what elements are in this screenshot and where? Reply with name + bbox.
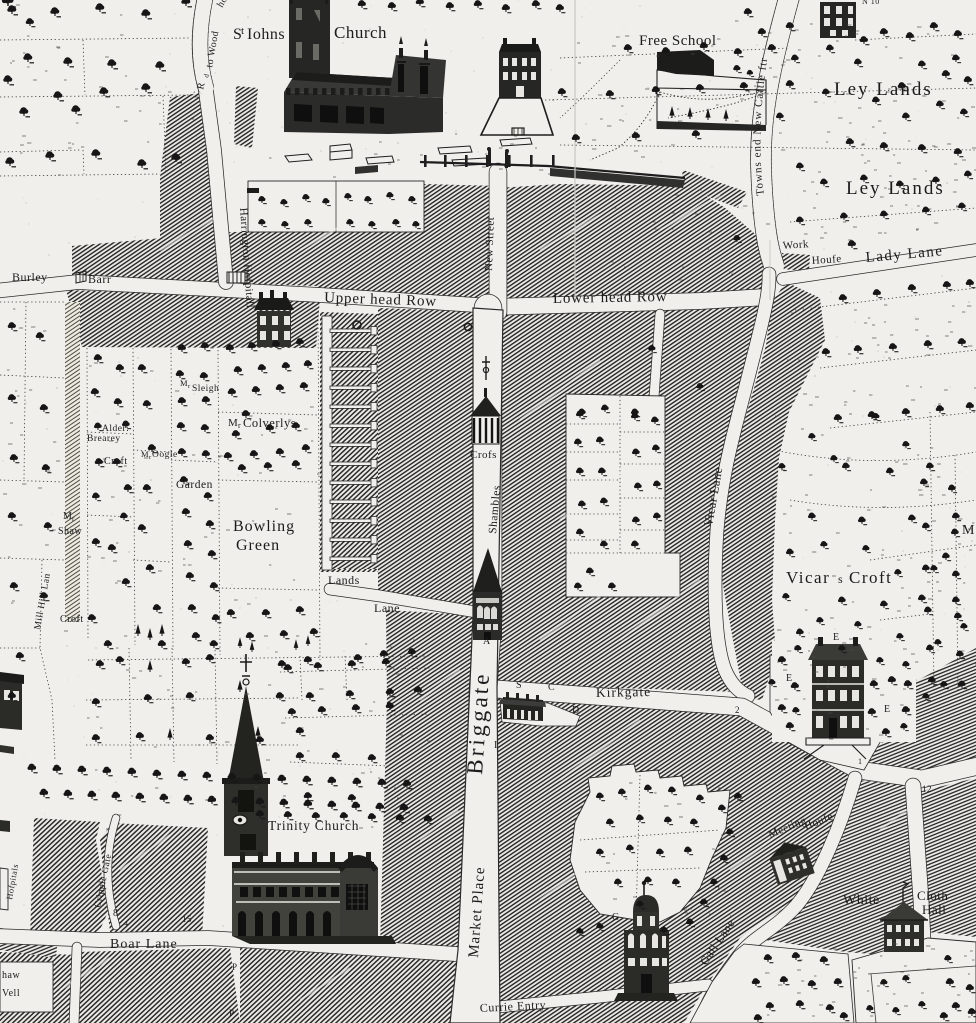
svg-text:r: r: [238, 421, 241, 430]
svg-text:Ley Lands: Ley Lands: [846, 178, 945, 199]
svg-text:Church: Church: [334, 23, 387, 42]
svg-text:12: 12: [922, 784, 932, 794]
svg-text:New Street: New Street: [483, 217, 497, 272]
svg-text:Lower head Row: Lower head Row: [553, 289, 668, 307]
svg-text:E: E: [884, 704, 891, 715]
svg-text:r: r: [188, 383, 191, 390]
svg-text:8: 8: [113, 908, 119, 919]
svg-text:M: M: [180, 378, 188, 388]
svg-text:Hall: Hall: [922, 902, 946, 917]
svg-text:Houfe: Houfe: [811, 253, 842, 267]
svg-text:Bowling: Bowling: [233, 518, 295, 535]
svg-text:Ley Lands: Ley Lands: [834, 79, 933, 100]
svg-text:Green: Green: [236, 537, 280, 554]
svg-text:Croft: Croft: [104, 456, 128, 467]
svg-text:Cloth: Cloth: [917, 888, 948, 903]
svg-text:15: 15: [182, 914, 192, 924]
svg-text:M: M: [228, 417, 238, 429]
svg-text:Trinity Church: Trinity Church: [268, 818, 359, 833]
svg-text:Crofs: Crofs: [470, 449, 497, 461]
svg-text:haw: haw: [2, 970, 20, 981]
svg-text:Work: Work: [782, 238, 809, 252]
svg-text:M: M: [63, 511, 72, 522]
svg-text:Croft: Croft: [60, 614, 84, 625]
svg-text:r: r: [72, 515, 75, 523]
svg-text:M: M: [962, 523, 975, 538]
svg-text:Kirkgate: Kirkgate: [596, 684, 651, 700]
svg-text:1: 1: [858, 757, 863, 766]
svg-text:Alder:: Alder:: [102, 424, 129, 434]
svg-text:Burley: Burley: [12, 270, 48, 284]
svg-text:Lane: Lane: [374, 601, 400, 615]
svg-text:E: E: [833, 632, 840, 643]
svg-text:Colverlys: Colverlys: [243, 416, 296, 430]
svg-text:I: I: [494, 740, 498, 751]
svg-text:Vicar: Vicar: [786, 568, 830, 587]
svg-text:4: 4: [124, 919, 129, 928]
svg-text:P: P: [232, 962, 238, 972]
svg-text:Free School: Free School: [639, 33, 717, 49]
svg-text:A: A: [483, 636, 491, 647]
svg-text:Barr: Barr: [88, 272, 111, 286]
svg-text:Shaw: Shaw: [58, 526, 83, 537]
svg-text:E: E: [786, 673, 793, 684]
svg-text:S: S: [516, 680, 522, 691]
svg-text:Brearey: Brearey: [87, 434, 121, 444]
svg-text:t: t: [241, 25, 245, 37]
svg-text:2: 2: [735, 705, 740, 715]
svg-text:P: P: [229, 1008, 235, 1018]
svg-text:s: s: [838, 572, 843, 586]
svg-text:G: G: [612, 912, 620, 923]
svg-text:C: C: [548, 682, 555, 693]
svg-text:Oogle: Oogle: [152, 450, 178, 460]
svg-text:Boar Lane: Boar Lane: [110, 937, 178, 952]
svg-text:Lands: Lands: [328, 573, 360, 587]
svg-text:Iohns: Iohns: [247, 26, 285, 43]
svg-text:N 10: N 10: [862, 0, 880, 6]
svg-text:Croft: Croft: [849, 568, 892, 587]
svg-text:M: M: [141, 449, 149, 459]
svg-text:Sleigh: Sleigh: [192, 384, 219, 394]
svg-text:Vell: Vell: [2, 988, 20, 999]
svg-text:Garden: Garden: [176, 479, 213, 491]
svg-text:D: D: [572, 705, 580, 716]
svg-text:White: White: [843, 893, 880, 908]
